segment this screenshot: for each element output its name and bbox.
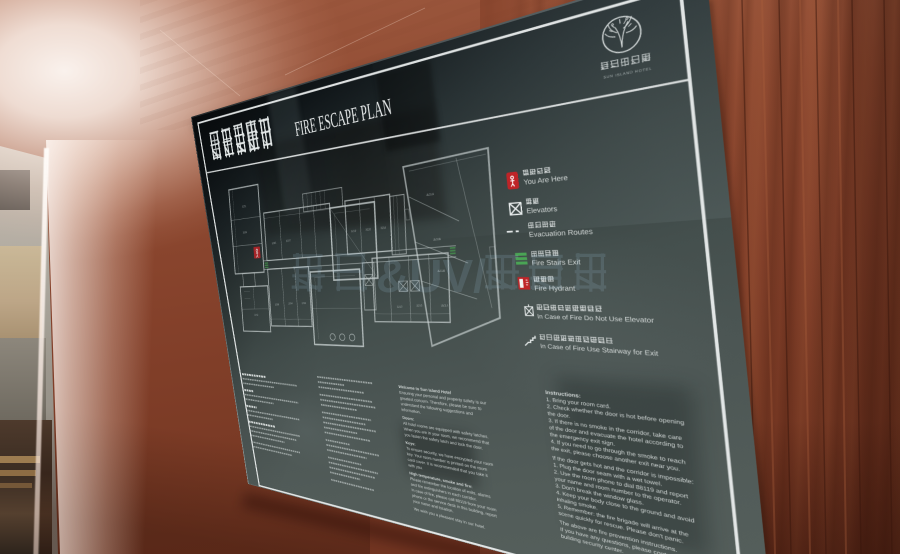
svg-text:SUN ISLAND HOTEL: SUN ISLAND HOTEL [603,65,652,80]
svg-text:3208: 3208 [275,304,280,307]
svg-text:3205: 3205 [272,242,277,245]
svg-text:3207: 3207 [286,240,292,243]
svg-text:3213: 3213 [426,193,435,197]
svg-text:3202: 3202 [254,314,259,316]
svg-text:3218: 3218 [380,227,387,231]
svg-text:3203: 3203 [243,232,248,235]
svg-text:&UV/: &UV/ [376,250,486,302]
svg-text:In Case of Fire Do Not Use Ele: In Case of Fire Do Not Use Elevator [537,313,656,324]
svg-text:Evacuation Routes: Evacuation Routes [528,226,593,238]
svg-text:3201: 3201 [242,206,247,209]
svg-text:FIRE ESCAPE PLAN: FIRE ESCAPE PLAN [294,95,394,142]
svg-text:3220: 3220 [365,229,372,233]
svg-text:Elevators: Elevators [526,204,558,215]
svg-text:3216: 3216 [433,238,442,242]
svg-text:3219: 3219 [351,230,357,234]
svg-text:In Case of Fire Use Stairway f: In Case of Fire Use Stairway for Exit [540,343,659,358]
